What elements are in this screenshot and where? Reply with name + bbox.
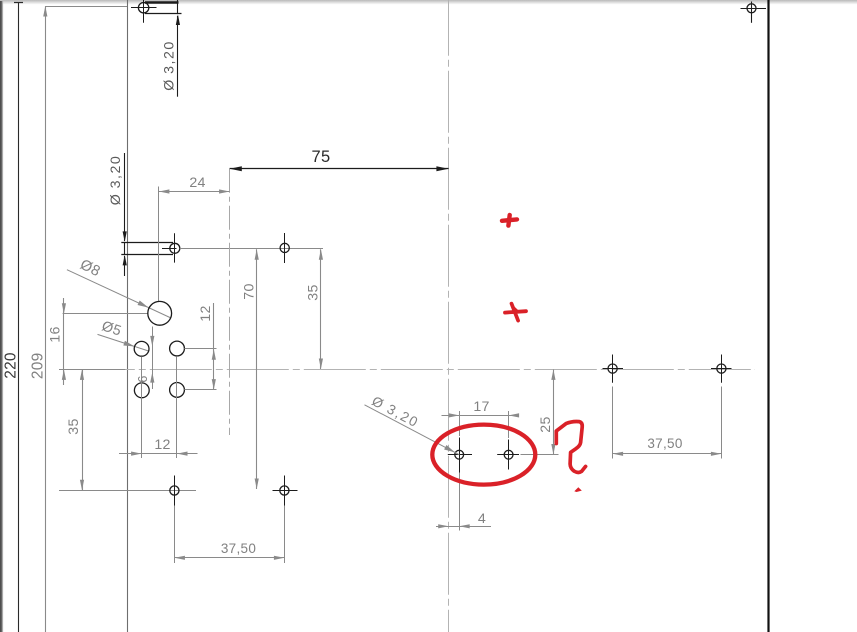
svg-text:12: 12 (154, 437, 170, 453)
svg-text:209: 209 (30, 353, 47, 380)
svg-text:25: 25 (538, 416, 554, 432)
svg-text:24: 24 (189, 175, 205, 191)
svg-text:17: 17 (473, 399, 489, 415)
svg-text:Ø 3,20: Ø 3,20 (162, 40, 178, 91)
svg-text:37,50: 37,50 (647, 436, 682, 451)
svg-text:35: 35 (66, 418, 82, 434)
svg-text:Ø 3,20: Ø 3,20 (108, 155, 124, 206)
svg-text:37,50: 37,50 (221, 541, 256, 556)
svg-text:16: 16 (47, 326, 63, 342)
svg-text:220: 220 (3, 352, 20, 379)
svg-text:35: 35 (305, 284, 321, 300)
svg-text:6: 6 (136, 375, 150, 382)
svg-text:75: 75 (312, 148, 331, 166)
svg-text:70: 70 (241, 283, 257, 299)
svg-text:12: 12 (198, 305, 214, 321)
svg-text:4: 4 (478, 511, 486, 527)
